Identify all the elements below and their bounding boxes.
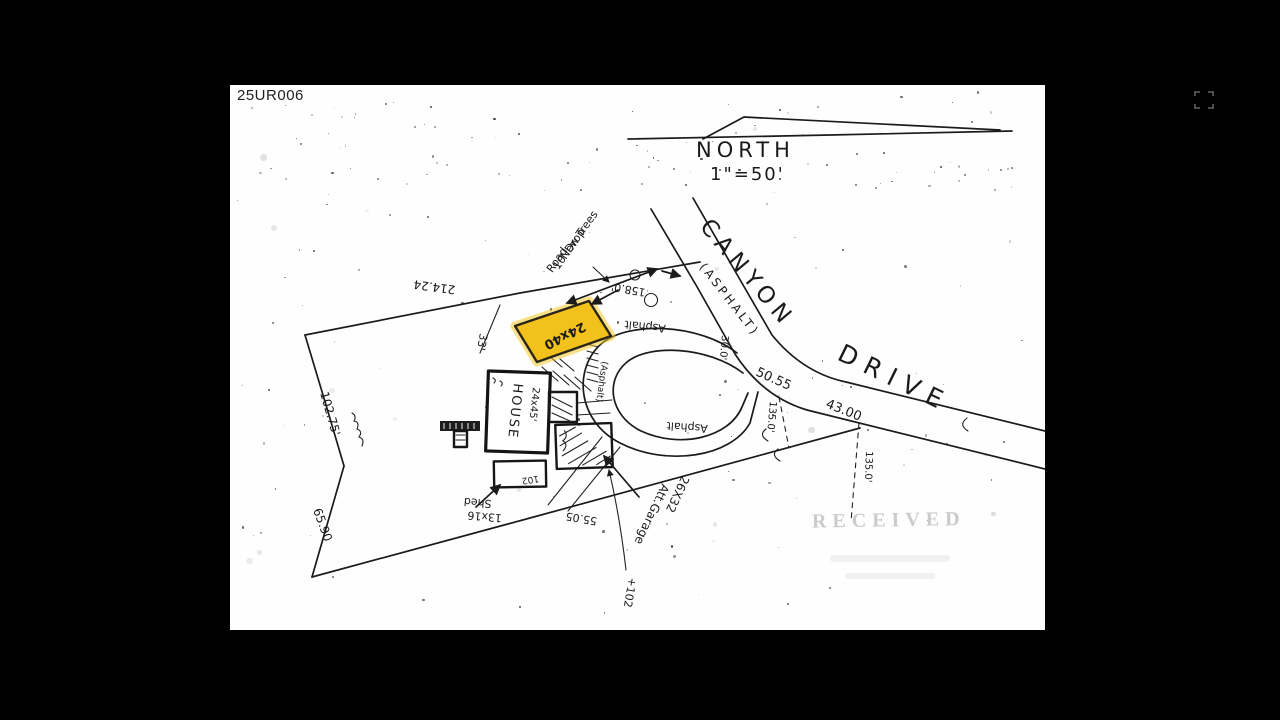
asphalt-label-top: Asphalt: [623, 318, 666, 335]
dim-road-frontage-a: 50.55: [753, 365, 793, 394]
dim-setback: 33': [474, 332, 490, 351]
dim-road-frontage-b: 43.00: [824, 397, 864, 425]
scale-label: 1"=50': [710, 164, 785, 185]
attached-garage: [555, 423, 613, 469]
dim-road-width: 30.0': [717, 335, 730, 361]
garage-label: Att.Garage: [632, 482, 672, 547]
viewer-stage: 25UR006 NORTH 1"=50': [0, 0, 1280, 720]
shed-area: 102: [521, 473, 539, 485]
asphalt-label-bottom: Asphalt: [665, 419, 708, 435]
shed-dims: 13x16: [467, 509, 503, 525]
dim-top-boundary: 214.24: [413, 277, 457, 297]
dim-frontage: 158.0': [610, 280, 646, 299]
house-extension: [549, 392, 577, 422]
benchmark-leader-line: [609, 470, 626, 570]
dim-bottom-boundary: 55.05: [565, 509, 598, 527]
dim-depth-a: 135.0': [764, 401, 778, 433]
received-stamp: RECEIVED: [812, 507, 1002, 533]
house-deck-steps: [440, 421, 480, 447]
expand-icon[interactable]: [1193, 90, 1215, 110]
site-plan-drawing: NORTH 1"=50' CANYON (ASPHALT) DRI: [230, 85, 1045, 630]
benchmark-label: +102: [621, 576, 639, 608]
dim-left-upper: 102.75': [317, 390, 343, 437]
scanned-site-plan-page: 25UR006 NORTH 1"=50': [230, 85, 1045, 630]
garage-pointer-arrow: [604, 456, 639, 497]
stamp-smudge-2: [845, 573, 935, 579]
illegible-notes: [352, 378, 502, 446]
dim-depth-b: 135.0': [862, 451, 874, 483]
north-label: NORTH: [696, 138, 795, 162]
north-arrow: [628, 117, 1012, 139]
stamp-smudge-1: [830, 555, 950, 562]
